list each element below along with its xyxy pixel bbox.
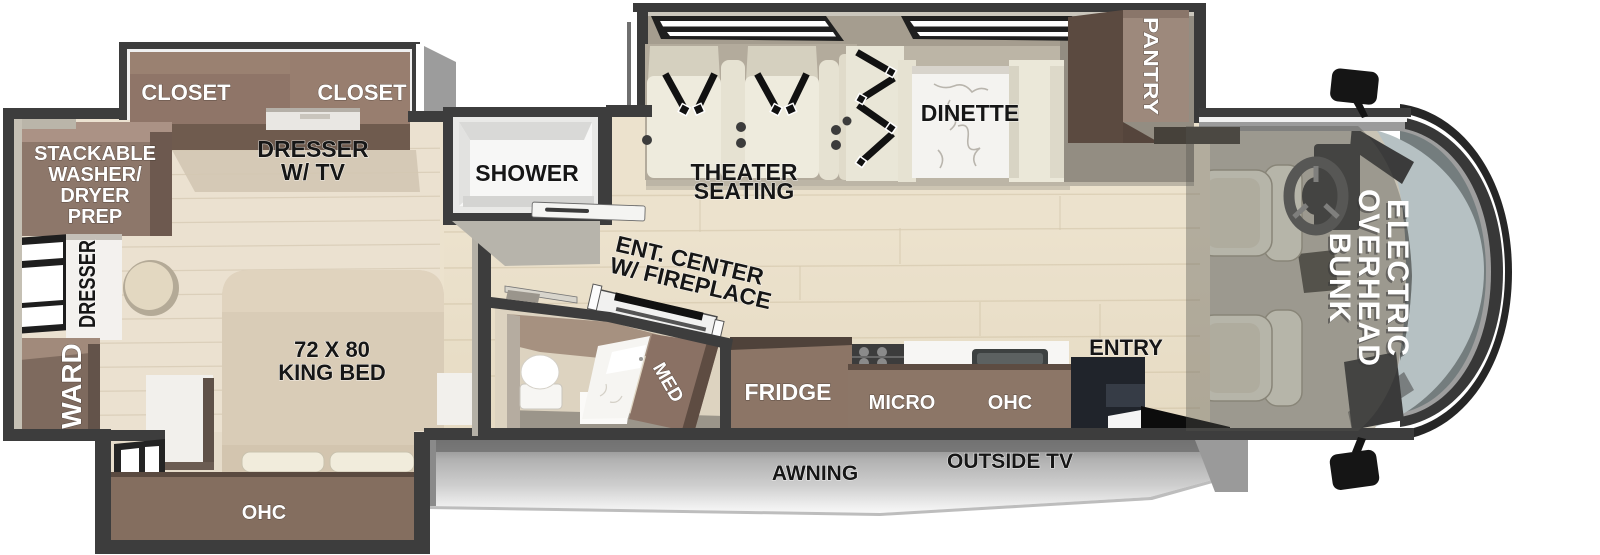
svg-text:FRIDGE: FRIDGE: [745, 379, 832, 405]
svg-text:WASHER/: WASHER/: [48, 164, 142, 186]
svg-text:AWNING: AWNING: [772, 462, 858, 485]
svg-text:CLOSET: CLOSET: [317, 80, 407, 105]
svg-text:ENTRY: ENTRY: [1089, 335, 1163, 360]
svg-text:SHOWER: SHOWER: [475, 160, 579, 186]
svg-text:W/ TV: W/ TV: [281, 159, 346, 185]
svg-text:KING BED: KING BED: [278, 360, 386, 385]
svg-text:CLOSET: CLOSET: [141, 80, 231, 105]
svg-text:WARD: WARD: [56, 343, 87, 429]
svg-text:MICRO: MICRO: [869, 392, 936, 414]
svg-text:72 X 80: 72 X 80: [294, 337, 370, 362]
svg-text:DRESSER: DRESSER: [74, 240, 100, 328]
svg-text:PREP: PREP: [68, 206, 122, 228]
svg-text:OUTSIDE TV: OUTSIDE TV: [947, 450, 1073, 473]
svg-text:OHC: OHC: [988, 392, 1032, 414]
svg-text:DINETTE: DINETTE: [921, 100, 1019, 126]
svg-text:SEATING: SEATING: [694, 178, 795, 204]
svg-text:BUNK: BUNK: [1323, 233, 1356, 324]
svg-text:OHC: OHC: [242, 502, 286, 524]
svg-text:STACKABLE: STACKABLE: [34, 143, 156, 165]
svg-text:PANTRY: PANTRY: [1139, 17, 1161, 116]
svg-text:DRYER: DRYER: [60, 185, 130, 207]
